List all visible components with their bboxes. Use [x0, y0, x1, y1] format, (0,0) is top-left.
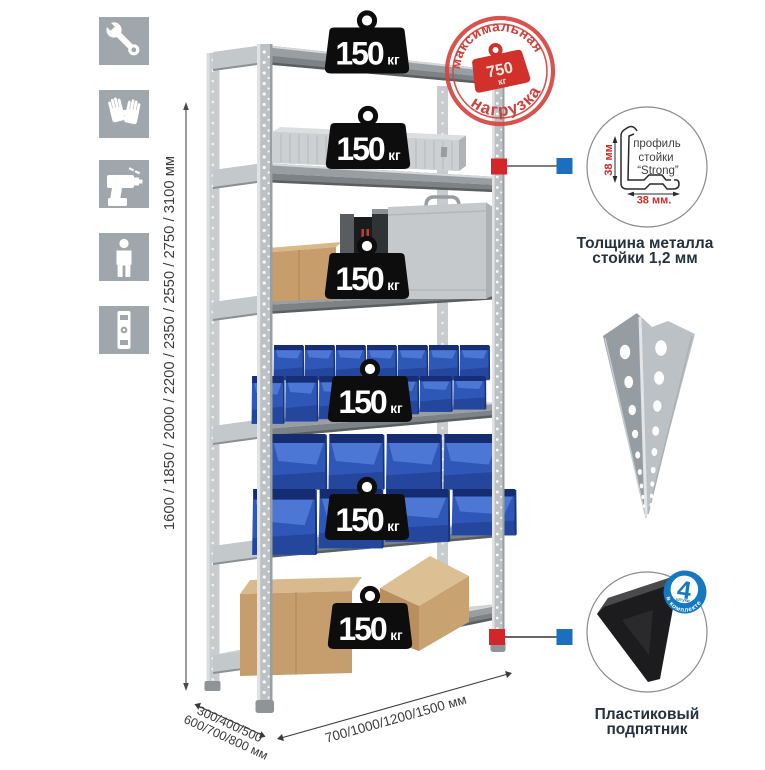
- svg-text:“Strong”: “Strong”: [637, 165, 679, 177]
- svg-text:подпятник: подпятник: [606, 721, 687, 738]
- svg-text:38 мм: 38 мм: [603, 144, 615, 176]
- svg-text:стойки: стойки: [638, 152, 673, 164]
- svg-text:профиль: профиль: [633, 138, 681, 150]
- svg-text:38 мм.: 38 мм.: [637, 195, 672, 207]
- svg-text:1600 / 1850 / 2000 / 2200 / 23: 1600 / 1850 / 2000 / 2200 / 2350 / 2550 …: [162, 156, 178, 530]
- svg-text:стойки 1,2 мм: стойки 1,2 мм: [592, 250, 697, 267]
